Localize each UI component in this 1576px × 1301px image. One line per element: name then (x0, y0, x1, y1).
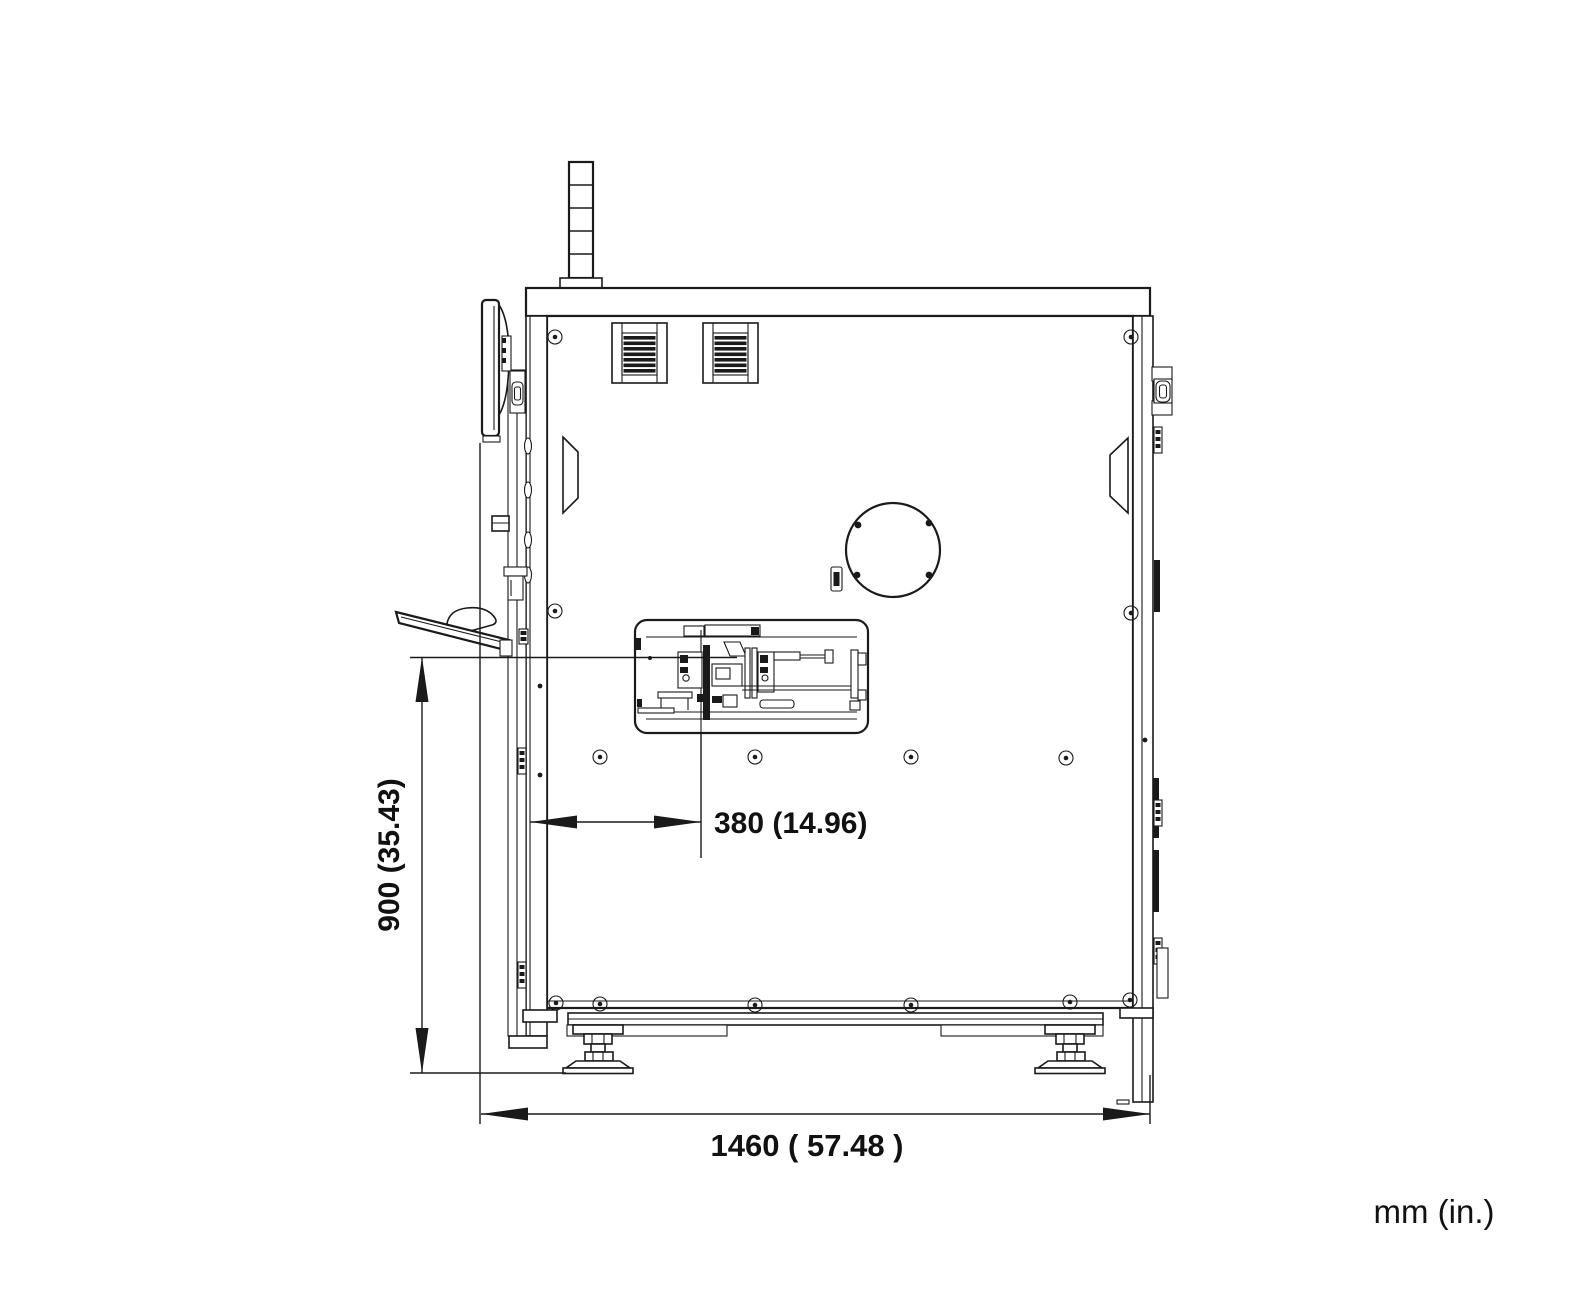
overall-width-dimension-label: 1460 ( 57.48 ) (710, 1128, 903, 1163)
z-column (703, 645, 710, 720)
monitor-panel (482, 300, 499, 436)
small-connector (831, 567, 842, 591)
rivet-dot (1143, 738, 1148, 743)
rear-panel-edge (1133, 316, 1153, 1102)
leveling-foot-right (1035, 1025, 1105, 1074)
technical-drawing-page: 900 (35.43) 380 (14.96) 1460 ( 57.48 ) m… (0, 0, 1576, 1301)
process-window-mechanism (635, 620, 868, 733)
button-bump (525, 438, 532, 454)
panel-foot-tab (1117, 1100, 1129, 1104)
latch-handle (1152, 367, 1172, 415)
door-bottom-bar (509, 1036, 547, 1048)
arrowhead-right (1103, 1108, 1150, 1121)
arrowhead-down (416, 1028, 429, 1073)
door-hinge (518, 748, 526, 774)
base-frame (523, 1008, 1153, 1074)
top-cover (526, 288, 1150, 316)
units-note: mm (in.) (1374, 1193, 1495, 1230)
rivet-dot (538, 684, 543, 689)
arm (774, 652, 800, 660)
corner-bracket-right (1120, 1008, 1153, 1018)
lower-bracket (504, 567, 527, 600)
button-bump (525, 482, 532, 498)
tray-support (500, 640, 512, 656)
arrowhead-left (481, 1108, 528, 1121)
hinge-strip (1154, 560, 1160, 612)
door-panel-edge (526, 316, 547, 1036)
hinge-strip (1153, 850, 1159, 912)
arrowhead-up (416, 657, 429, 702)
signal-tower-base (560, 278, 602, 288)
corner-bracket-left (523, 1010, 557, 1022)
front-door-column (492, 316, 547, 1048)
hinge-bracket (1157, 948, 1168, 998)
door-hinge (518, 962, 526, 988)
vent-grille (703, 323, 758, 383)
tray-connector (519, 629, 528, 644)
monitor-base-strip (483, 436, 500, 442)
rivet-dot (538, 773, 543, 778)
door-hinge (1154, 427, 1162, 453)
door-hinge (1154, 800, 1162, 826)
tool-offset-dimension-label: 380 (14.96) (714, 807, 867, 840)
machine-side-view-drawing: 900 (35.43) 380 (14.96) 1460 ( 57.48 ) m… (0, 0, 1576, 1301)
signal-tower-stack (569, 162, 593, 278)
height-dimension-label: 900 (35.43) (373, 778, 406, 931)
overall-width-dimension: 1460 ( 57.48 ) (481, 1108, 1150, 1164)
button-bump (525, 532, 532, 548)
leveling-foot-left (563, 1025, 633, 1074)
vent-grille (612, 323, 667, 383)
height-dimension: 900 (35.43) (373, 657, 429, 1073)
signal-tower (560, 162, 602, 288)
